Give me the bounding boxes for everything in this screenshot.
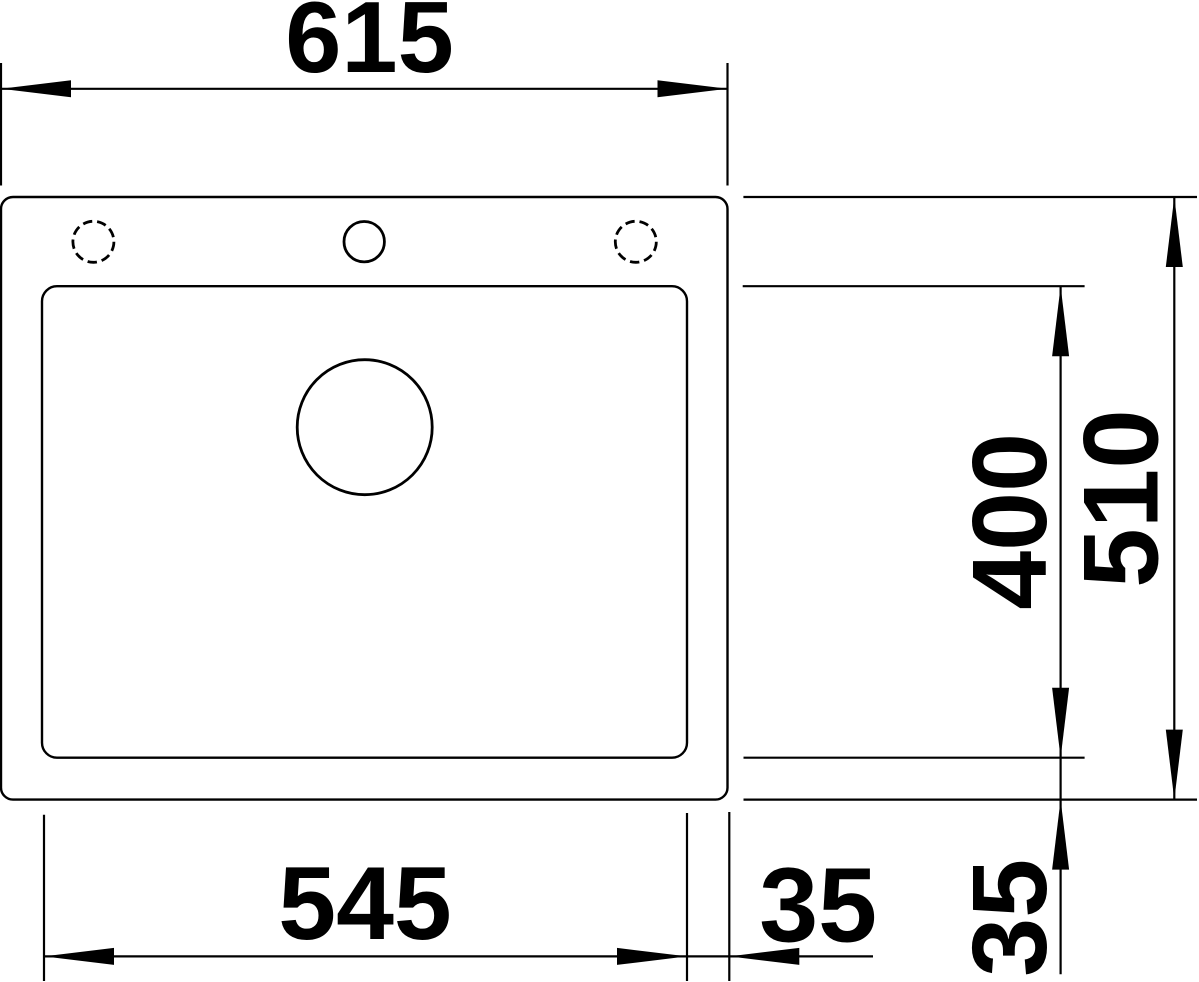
svg-text:510: 510 — [1061, 409, 1181, 588]
svg-text:35: 35 — [759, 847, 877, 965]
svg-text:545: 545 — [278, 846, 452, 962]
svg-text:35: 35 — [951, 859, 1069, 977]
svg-text:615: 615 — [285, 0, 454, 94]
svg-text:400: 400 — [951, 433, 1069, 610]
